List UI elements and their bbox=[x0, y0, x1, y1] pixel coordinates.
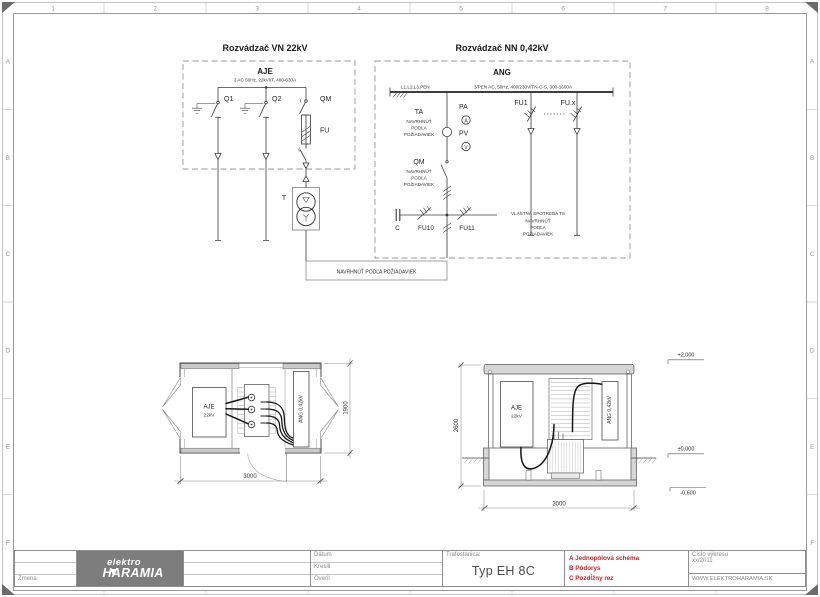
bushing-dot bbox=[251, 409, 253, 411]
q1-feeder-arrow bbox=[215, 154, 221, 160]
pit-plinth bbox=[596, 471, 601, 481]
row-label: F bbox=[6, 540, 10, 547]
floor-plan: AJE 22kV ANG 0,42kV 3000 1900 bbox=[163, 358, 354, 484]
sheet-item-a: A Jednopólová schéma bbox=[565, 554, 688, 563]
section-dim-h: 2600 bbox=[454, 418, 460, 432]
plan-wall-seg bbox=[181, 448, 239, 453]
roof-detail bbox=[488, 370, 491, 373]
section-wall-left bbox=[489, 374, 494, 448]
interconnect-note: NAVRHNÚŤ PODĽA POŽIADAVIEK bbox=[306, 261, 447, 280]
fu1-hatch bbox=[525, 108, 536, 117]
col-label: 7 bbox=[663, 6, 667, 13]
fu10-label: FU10 bbox=[418, 225, 434, 232]
company-logo: elektro HARAMIA bbox=[77, 551, 184, 586]
row-label: D bbox=[5, 348, 10, 355]
station-type-cell: Trafostanica: Typ EH 8C bbox=[443, 551, 565, 586]
spare-cell bbox=[184, 563, 310, 575]
transformer-secondary-winding bbox=[297, 207, 315, 225]
plan-aje-cabinet bbox=[193, 388, 227, 438]
note-box-text: NAVRHNÚŤ PODĽA POŽIADAVIEK bbox=[337, 268, 417, 276]
section-dim-h-lines bbox=[458, 365, 481, 486]
q2-line bbox=[263, 88, 269, 241]
sheet-item-c: C Pozdĺžny rez bbox=[565, 574, 688, 583]
qm-label: QM bbox=[320, 96, 331, 103]
nn-qm-label: QM bbox=[413, 159, 424, 166]
row-label: B bbox=[6, 155, 10, 162]
drawing-number-cell: Číslo výkresu xx/2011 bbox=[689, 551, 805, 574]
overil-label: Overil bbox=[311, 575, 442, 586]
q1-line bbox=[215, 88, 221, 241]
kreslil-label: Kreslil bbox=[311, 563, 442, 575]
q1-label: Q1 bbox=[224, 96, 233, 103]
c-label: C bbox=[395, 225, 400, 232]
trafostanica-label: Trafostanica: bbox=[446, 552, 480, 558]
ta-note-3: POŽIADAVIEK bbox=[404, 130, 435, 137]
section-dim-w: 3000 bbox=[552, 502, 566, 508]
qm-blade bbox=[300, 102, 306, 114]
section-roof bbox=[484, 365, 634, 375]
revision-cell bbox=[15, 563, 76, 575]
fu10-hatch bbox=[420, 206, 431, 214]
qm-note-3: POŽIADAVIEK bbox=[404, 180, 435, 187]
frame: 1 2 3 4 5 6 7 8 A B C D E F A B C D E F bbox=[2, 2, 818, 595]
qm-pivot bbox=[305, 100, 308, 103]
q2-blade bbox=[259, 104, 265, 117]
ta-ct-icon bbox=[442, 127, 451, 136]
col-label: 8 bbox=[765, 6, 769, 13]
section-ang-label: ANG 0,42kV bbox=[607, 395, 613, 423]
website: WWW.ELEKTROHARAMIA.SK bbox=[689, 574, 805, 586]
vn-title: Rozvádzač VN 22kV bbox=[222, 43, 307, 53]
level-top-mark bbox=[668, 360, 704, 364]
pit-wall-right bbox=[631, 448, 637, 480]
q1-pivot bbox=[217, 101, 220, 104]
sheet-list: A Jednopólová schéma B Pôdorys C Pozdĺžn… bbox=[565, 551, 689, 586]
plan-aje-kv: 22kV bbox=[204, 413, 216, 419]
fu1-label: FU1 bbox=[514, 100, 527, 107]
qm-arrow-down bbox=[303, 163, 309, 169]
bushing-dot bbox=[251, 397, 253, 399]
plan-wall-seg bbox=[181, 364, 239, 369]
level-low: -0,600 bbox=[680, 491, 696, 497]
transformer-base bbox=[552, 473, 580, 479]
signature-column: Dátum Kreslil Overil bbox=[311, 551, 443, 586]
vn-spec: 3 AC 50Hz, 22kV/IT, 400-630A bbox=[234, 78, 297, 83]
capacitor-icon bbox=[396, 209, 400, 221]
plan-aje-label: AJE bbox=[203, 405, 214, 411]
fu-label: FU bbox=[320, 128, 329, 135]
qm-note-1: NAVRHNÚŤ bbox=[406, 167, 431, 174]
row-label: D bbox=[810, 348, 815, 355]
vn-panel-label: AJE bbox=[257, 67, 273, 76]
fux-label: FU.x bbox=[561, 100, 576, 107]
right-door-leaves bbox=[321, 378, 339, 440]
fu1-arrow bbox=[528, 129, 534, 135]
q2-earth-switch-icon bbox=[240, 104, 264, 114]
q2-feeder-arrow bbox=[263, 154, 269, 160]
bushing-dot bbox=[251, 424, 253, 426]
conductor-hatch bbox=[393, 93, 407, 98]
row-label: A bbox=[6, 59, 11, 66]
plan-wall-seg bbox=[283, 448, 320, 453]
row-label: A bbox=[810, 59, 815, 66]
nn-spec: 3/PEN AC, 50Hz, 400/230V/TN-C-S, 300-160… bbox=[474, 85, 573, 90]
section-view: AJE 22kV ANG 0,42kV 2600 3000 +2,000 ±0,… bbox=[454, 353, 706, 512]
datum-label: Dátum bbox=[311, 551, 442, 563]
col-label: 5 bbox=[459, 6, 463, 13]
station-type: Typ EH 8C bbox=[472, 564, 535, 578]
pit-plinth bbox=[526, 471, 531, 481]
pit-wall-left bbox=[484, 448, 490, 480]
nn-qm-pivot bbox=[446, 161, 448, 163]
pv-label: PV bbox=[459, 131, 469, 138]
ta-label: TA bbox=[415, 109, 424, 116]
zmena-label: Zmena bbox=[15, 575, 76, 586]
fux-hatch bbox=[571, 108, 582, 117]
wye-winding-icon bbox=[303, 214, 309, 221]
plan-wall-seg bbox=[283, 364, 320, 369]
own-use-note-1: NAVRHNÚŤ bbox=[525, 217, 550, 224]
col-label: 2 bbox=[153, 6, 157, 13]
revision-column: Zmena bbox=[15, 551, 77, 586]
nn-diagram: Rozvádzač NN 0,42kV ANG L1,L2,L3,PEN 3/P… bbox=[375, 43, 630, 258]
drawing-number-column: Číslo výkresu xx/2011 WWW.ELEKTROHARAMIA… bbox=[689, 551, 805, 586]
col-label: 1 bbox=[51, 6, 55, 13]
sheet-item-b: B Pôdorys bbox=[565, 564, 688, 573]
qm-contact-arcs bbox=[299, 99, 302, 152]
col-label: 6 bbox=[561, 6, 565, 13]
qm-note-2: PODĽA bbox=[411, 176, 428, 181]
delta-winding-icon bbox=[303, 198, 309, 203]
nn-title: Rozvádzač NN 0,42kV bbox=[455, 43, 548, 53]
spare-cell bbox=[184, 551, 310, 563]
q2-label: Q2 bbox=[272, 96, 281, 103]
q2-pivot bbox=[265, 101, 268, 104]
plan-ang-label: ANG 0,42kV bbox=[299, 394, 305, 422]
drawing-sheet: 1 2 3 4 5 6 7 8 A B C D E F A B C D E F … bbox=[0, 0, 820, 597]
corner-marks bbox=[2, 2, 818, 595]
logo-arrow-icon bbox=[110, 569, 116, 575]
row-label: E bbox=[6, 444, 11, 451]
section-dim-w-lines bbox=[478, 490, 640, 511]
section-wall-right bbox=[627, 374, 632, 448]
row-label: B bbox=[810, 155, 814, 162]
q1-blade bbox=[211, 104, 217, 117]
spare-cell bbox=[184, 575, 310, 586]
nn-panel-label: ANG bbox=[493, 68, 511, 77]
ta-note-2: PODĽA bbox=[411, 126, 428, 131]
revision-cell bbox=[15, 551, 76, 563]
nn-conductors: L1,L2,L3,PEN bbox=[401, 85, 430, 90]
col-label: 4 bbox=[357, 6, 361, 13]
q1-earth-switch-icon bbox=[192, 104, 216, 114]
title-block: Zmena elektro HARAMIA Dátum Kreslil Over… bbox=[14, 550, 806, 587]
pa-label: PA bbox=[459, 104, 468, 111]
own-use-note-3: POŽIADAVIEK bbox=[523, 230, 554, 237]
plan-dim-h: 1900 bbox=[344, 401, 350, 415]
transformer-enclosure bbox=[293, 188, 320, 231]
fux-arrow bbox=[574, 129, 580, 135]
transformer-label: T bbox=[282, 195, 287, 202]
row-label: E bbox=[810, 444, 815, 451]
level-top: +2,000 bbox=[678, 353, 695, 359]
vn-diagram: Rozvádzač VN 22kV AJE 3 AC 50Hz, 22kV/IT… bbox=[183, 43, 355, 261]
fu11-hatch bbox=[460, 206, 471, 214]
fu11-label: FU11 bbox=[459, 225, 475, 232]
own-use-label: VLASTNÁ SPOTREBA TS bbox=[511, 210, 565, 216]
drawing-canvas: 1 2 3 4 5 6 7 8 A B C D E F A B C D E F … bbox=[0, 0, 820, 597]
row-label: F bbox=[810, 540, 814, 547]
ta-note-1: NAVRHNÚŤ bbox=[406, 117, 431, 124]
row-label: C bbox=[5, 251, 10, 258]
spare-column bbox=[184, 551, 311, 586]
door-opening bbox=[240, 448, 285, 454]
inner-border bbox=[14, 14, 807, 591]
pit-bottom bbox=[484, 480, 637, 486]
cislo-value: xx/2011 bbox=[692, 558, 805, 564]
transformer-arrow-up bbox=[303, 176, 309, 182]
left-door-leaves bbox=[163, 378, 181, 440]
nn-qm-blade bbox=[441, 165, 447, 179]
transformer-radiator bbox=[549, 379, 592, 440]
row-label: C bbox=[810, 251, 815, 258]
level-zero: ±0,000 bbox=[678, 447, 695, 453]
section-aje-kv: 22kV bbox=[511, 414, 523, 420]
plan-dim-w: 3000 bbox=[243, 474, 257, 480]
section-aje-label: AJE bbox=[511, 406, 522, 412]
roof-detail bbox=[626, 370, 629, 373]
level-zero-mark bbox=[668, 454, 704, 458]
col-label: 3 bbox=[255, 6, 259, 13]
own-use-note-2: PODĽA bbox=[530, 225, 547, 230]
